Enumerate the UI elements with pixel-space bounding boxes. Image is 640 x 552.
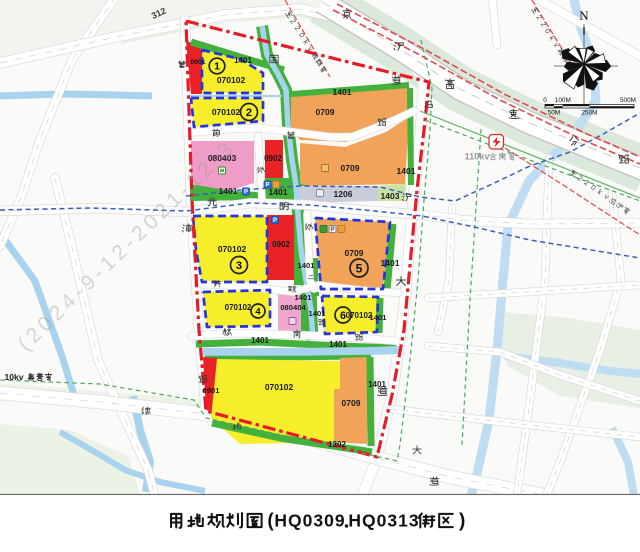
svg-text:070102: 070102 xyxy=(218,244,247,254)
svg-text:500M: 500M xyxy=(620,97,636,104)
svg-text:P: P xyxy=(265,183,269,189)
svg-text:110kv: 110kv xyxy=(464,152,490,162)
svg-text:070102: 070102 xyxy=(217,75,246,85)
svg-text:1401: 1401 xyxy=(329,340,347,349)
svg-text:080404: 080404 xyxy=(280,303,306,312)
svg-text:1401: 1401 xyxy=(333,87,352,97)
svg-text:1401: 1401 xyxy=(251,336,269,345)
svg-text:2: 2 xyxy=(246,107,252,119)
svg-text:P: P xyxy=(330,227,334,233)
svg-text:0902: 0902 xyxy=(264,154,282,163)
svg-text:HQ0313: HQ0313 xyxy=(348,511,419,531)
svg-text:1401: 1401 xyxy=(269,187,288,197)
svg-text:5: 5 xyxy=(356,261,363,275)
svg-text:1401: 1401 xyxy=(219,186,238,196)
svg-text:1401: 1401 xyxy=(370,313,388,322)
svg-text:1401: 1401 xyxy=(397,166,416,176)
svg-text:0709: 0709 xyxy=(316,107,335,117)
svg-text:250M: 250M xyxy=(582,110,598,117)
svg-text:0709: 0709 xyxy=(345,248,364,258)
svg-text:0902: 0902 xyxy=(272,240,290,249)
svg-text:0: 0 xyxy=(543,97,547,104)
svg-text:1401: 1401 xyxy=(309,309,327,318)
svg-text:3: 3 xyxy=(236,260,242,272)
svg-text:N: N xyxy=(579,8,589,23)
svg-text:1206: 1206 xyxy=(334,189,353,199)
svg-text:1401: 1401 xyxy=(295,293,313,302)
svg-text:1401: 1401 xyxy=(234,56,252,65)
svg-text:0709: 0709 xyxy=(341,163,360,173)
svg-text:6: 6 xyxy=(340,310,346,322)
svg-text:100M: 100M xyxy=(555,97,571,104)
svg-text:HQ0309: HQ0309 xyxy=(274,511,345,531)
svg-text:1401: 1401 xyxy=(298,261,316,270)
svg-text:4: 4 xyxy=(255,306,261,317)
svg-text:070102: 070102 xyxy=(265,382,294,392)
svg-text:): ) xyxy=(459,511,465,532)
svg-text:070102: 070102 xyxy=(212,107,241,117)
svg-text:1401: 1401 xyxy=(381,258,400,268)
svg-text:0901: 0901 xyxy=(203,386,221,395)
svg-text:1401: 1401 xyxy=(368,380,386,389)
svg-text:0901: 0901 xyxy=(190,59,205,66)
svg-text:1: 1 xyxy=(214,61,220,73)
svg-text:1302: 1302 xyxy=(328,440,346,449)
svg-text:P: P xyxy=(273,218,277,224)
svg-text:1403: 1403 xyxy=(381,191,400,201)
svg-text:10kv: 10kv xyxy=(4,372,23,382)
svg-text:070102: 070102 xyxy=(225,303,252,312)
svg-text:0709: 0709 xyxy=(342,398,361,408)
svg-text:(: ( xyxy=(267,511,274,532)
svg-text:50M: 50M xyxy=(548,110,560,117)
svg-text:P: P xyxy=(244,190,248,196)
